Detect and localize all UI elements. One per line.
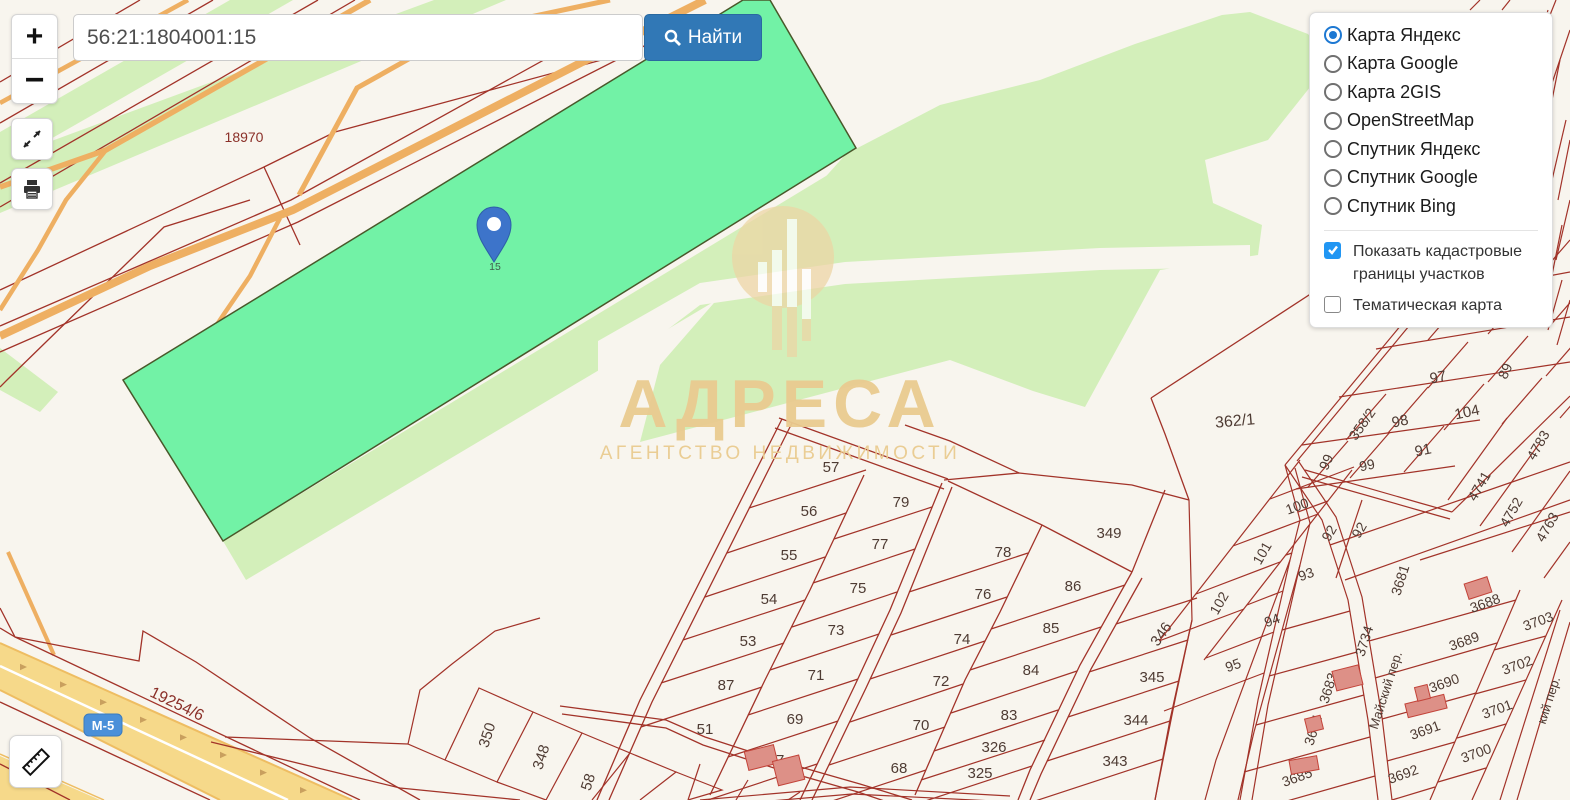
svg-text:56: 56 — [801, 503, 818, 520]
svg-text:98: 98 — [1390, 411, 1410, 431]
svg-text:86: 86 — [1065, 578, 1082, 595]
svg-text:55: 55 — [781, 547, 798, 564]
svg-text:97: 97 — [1428, 367, 1448, 387]
svg-text:54: 54 — [761, 591, 778, 608]
svg-text:87: 87 — [718, 677, 735, 694]
svg-text:326: 326 — [981, 739, 1006, 756]
svg-text:М-5: М-5 — [92, 718, 114, 733]
svg-text:79: 79 — [893, 494, 910, 511]
svg-text:70: 70 — [913, 717, 930, 734]
svg-text:72: 72 — [933, 673, 950, 690]
svg-text:76: 76 — [975, 586, 992, 603]
svg-text:АДРЕСА: АДРЕСА — [618, 366, 941, 442]
svg-text:344: 344 — [1123, 712, 1148, 729]
svg-text:АГЕНТСТВО НЕДВИЖИМОСТИ: АГЕНТСТВО НЕДВИЖИМОСТИ — [600, 443, 961, 464]
svg-text:71: 71 — [808, 667, 825, 684]
svg-text:85: 85 — [1043, 620, 1060, 637]
svg-text:77: 77 — [872, 536, 889, 553]
svg-text:343: 343 — [1102, 753, 1127, 770]
svg-text:362/1: 362/1 — [1214, 411, 1255, 431]
svg-text:68: 68 — [891, 760, 908, 777]
svg-text:78: 78 — [995, 544, 1012, 561]
svg-text:83: 83 — [1001, 707, 1018, 724]
svg-text:53: 53 — [740, 633, 757, 650]
svg-text:75: 75 — [850, 580, 867, 597]
svg-text:15: 15 — [489, 261, 501, 273]
svg-text:349: 349 — [1096, 525, 1121, 542]
svg-text:51: 51 — [697, 721, 714, 738]
svg-text:18970: 18970 — [225, 129, 264, 145]
svg-text:345: 345 — [1139, 669, 1164, 686]
svg-text:73: 73 — [828, 622, 845, 639]
svg-text:84: 84 — [1023, 662, 1040, 679]
svg-text:325: 325 — [967, 765, 992, 782]
svg-text:69: 69 — [787, 711, 804, 728]
svg-text:91: 91 — [1413, 440, 1433, 460]
svg-text:74: 74 — [954, 631, 971, 648]
